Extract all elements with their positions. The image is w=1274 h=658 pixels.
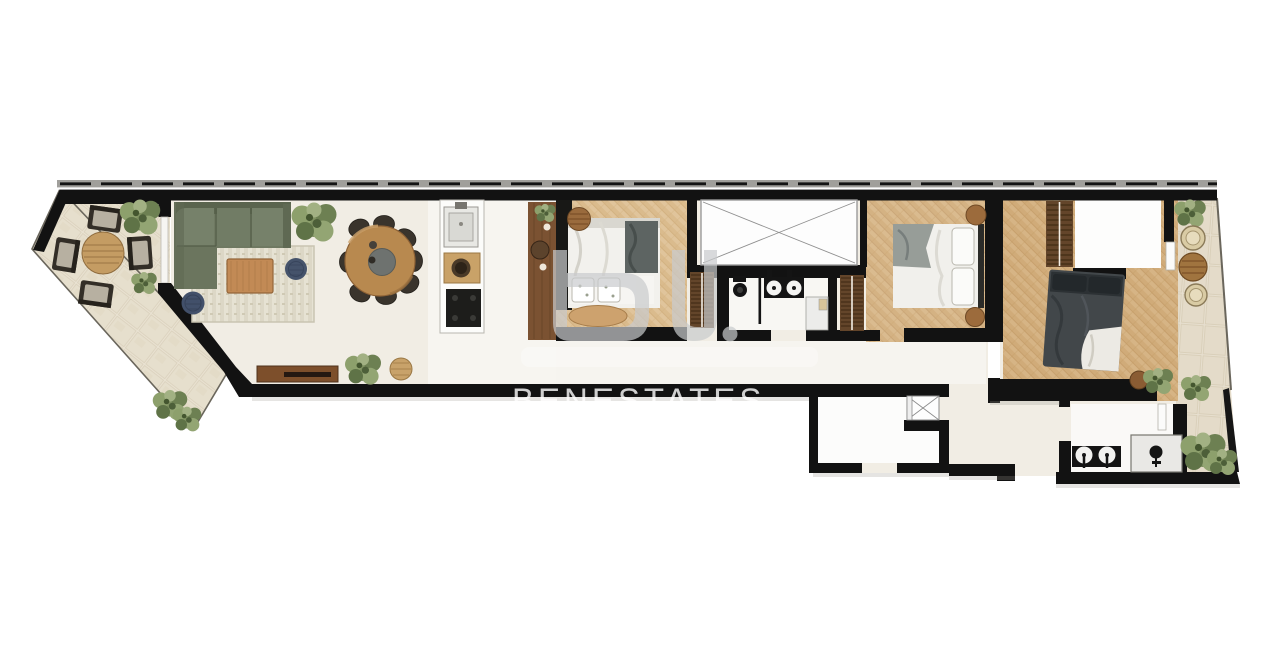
svg-text:BENESTATES: BENESTATES bbox=[512, 382, 765, 419]
